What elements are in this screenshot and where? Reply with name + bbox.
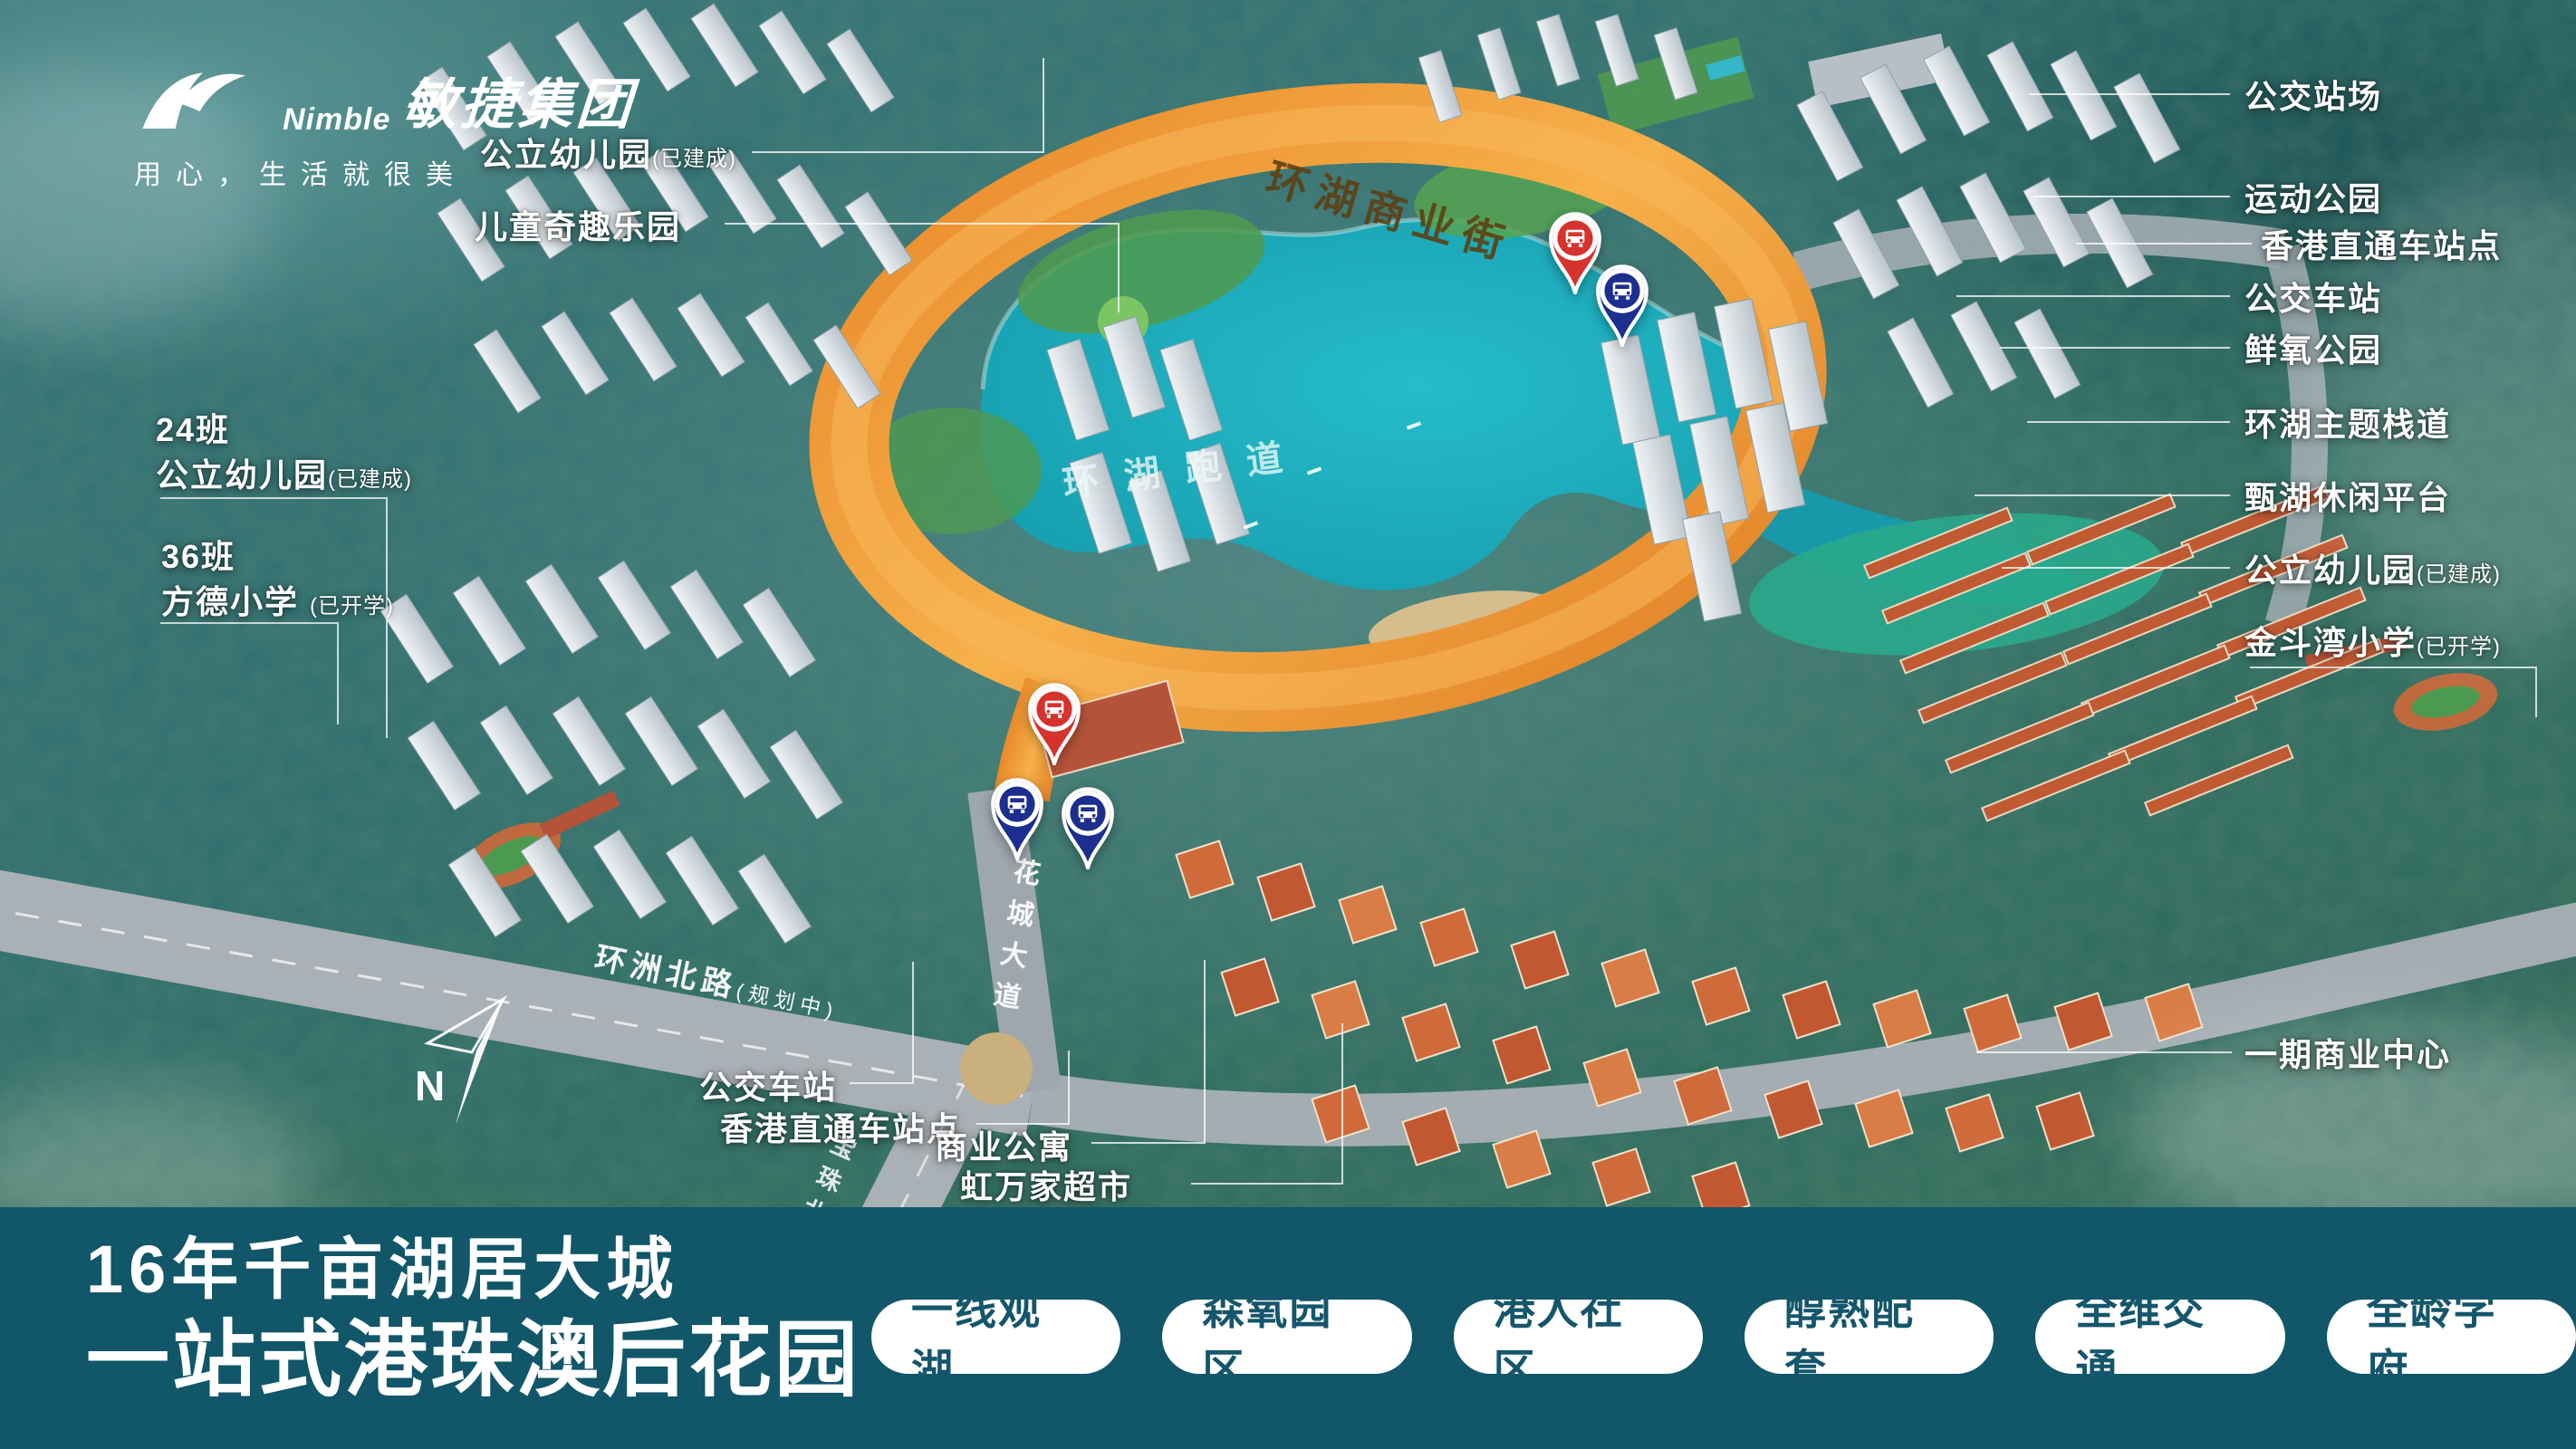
callout-36-class-fangde-primary-school: 36班 方德小学 (已开学) [161, 534, 394, 626]
callout-phase1-commercial-center: 一期商业中心 [2244, 1032, 2451, 1078]
callout-fresh-oxygen-park: 鲜氧公园 [2244, 328, 2382, 373]
pill-forest-oxygen: 森氧园区 [1162, 1300, 1411, 1374]
callout-suffix: (已建成) [328, 467, 412, 492]
callout-text: 儿童奇趣乐园 [475, 208, 681, 245]
callout-text: 虹万家超市 [960, 1168, 1132, 1205]
callout-prefix: 24班 [156, 408, 412, 453]
callout-hongwanjia-supermarket: 虹万家超市 [960, 1165, 1132, 1210]
callout-text: 香港直通车站点 [720, 1110, 961, 1147]
pill-full-transport: 全维交通 [2035, 1300, 2284, 1374]
callout-text: 公立幼儿园 [480, 136, 652, 173]
callout-suffix: (已建成) [2417, 562, 2501, 587]
callout-prefix: 36班 [161, 534, 394, 580]
callout-public-kindergarten-e: 公立幼儿园(已建成) [2244, 548, 2501, 593]
callout-text: 鲜氧公园 [2244, 331, 2382, 369]
callout-public-kindergarten-nw: 公立幼儿园(已建成) [480, 132, 736, 178]
callout-bus-station-sw: 公交车站 [699, 1065, 837, 1110]
real-estate-masterplan-poster: N 环湖商业街 环湖跑道 花城大道 环洲北路(规划中) 宝珠北路 [0, 0, 2576, 1449]
callout-text: 方德小学 [161, 583, 310, 620]
feature-pills: 一线观湖 森氧园区 港人社区 醇熟配套 全维交通 全龄学府 [871, 1300, 2576, 1374]
logo-text-cn: 敏捷集团 [400, 61, 638, 139]
bus-station-pin-icon [1592, 261, 1652, 347]
bus-station-pin-icon [1024, 679, 1084, 765]
logo-swoosh-icon [134, 60, 270, 139]
callout-bus-depot: 公交站场 [2244, 74, 2382, 120]
callout-jindouwan-primary-school: 金斗湾小学(已开学) [2244, 620, 2501, 666]
callout-text: 环湖主题栈道 [2244, 406, 2451, 443]
banner-title-line1: 16年千亩湖居大城 [86, 1231, 860, 1308]
pill-mature-amenities: 醇熟配套 [1745, 1300, 1994, 1374]
callout-hk-through-bus-stop-sw: 香港直通车站点 [720, 1107, 961, 1152]
callout-suffix: (已开学) [2417, 635, 2501, 659]
callout-text: 金斗湾小学 [2244, 624, 2417, 661]
callout-sports-park: 运动公园 [2244, 177, 2382, 222]
callout-lakeside-theme-boardwalk: 环湖主题栈道 [2244, 402, 2451, 447]
callout-text: 运动公园 [2244, 180, 2382, 217]
callout-text: 香港直通车站点 [2261, 227, 2502, 264]
pill-hk-community: 港人社区 [1454, 1300, 1703, 1374]
callout-suffix: (已建成) [652, 147, 736, 171]
callout-text: 一期商业中心 [2244, 1036, 2451, 1073]
callout-suffix: (已开学) [310, 594, 394, 619]
callout-text: 商业公寓 [935, 1128, 1072, 1166]
banner-titles: 16年千亩湖居大城 一站式港珠澳后花园 [86, 1231, 860, 1409]
banner-title-line2: 一站式港珠澳后花园 [86, 1313, 860, 1409]
callout-commercial-apartments: 商业公寓 [935, 1125, 1072, 1170]
bottom-banner: 16年千亩湖居大城 一站式港珠澳后花园 一线观湖 森氧园区 港人社区 醇熟配套 … [0, 1207, 2576, 1449]
bus-station-pin-icon [987, 774, 1047, 860]
bus-station-pin-icon [1058, 783, 1118, 869]
logo-text-en: Nimble [283, 102, 390, 139]
callout-text: 公立幼儿园 [156, 456, 328, 494]
callout-hk-through-bus-stop-ne: 香港直通车站点 [2261, 224, 2502, 269]
callout-children-fun-park: 儿童奇趣乐园 [475, 205, 681, 250]
callout-24-class-kindergarten: 24班 公立幼儿园(已建成) [156, 408, 412, 499]
callout-text: 公交站场 [2244, 78, 2382, 115]
callout-text: 甄湖休闲平台 [2244, 479, 2451, 516]
callout-zhenhu-leisure-platform: 甄湖休闲平台 [2244, 475, 2451, 521]
callout-text: 公交车站 [699, 1069, 837, 1106]
callout-text: 公交车站 [2244, 280, 2382, 317]
callout-bus-station-ne: 公交车站 [2244, 276, 2382, 321]
callout-text: 公立幼儿园 [2244, 552, 2417, 589]
pill-lake-view: 一线观湖 [871, 1300, 1120, 1374]
pill-all-age-schools: 全龄学府 [2327, 1300, 2576, 1374]
